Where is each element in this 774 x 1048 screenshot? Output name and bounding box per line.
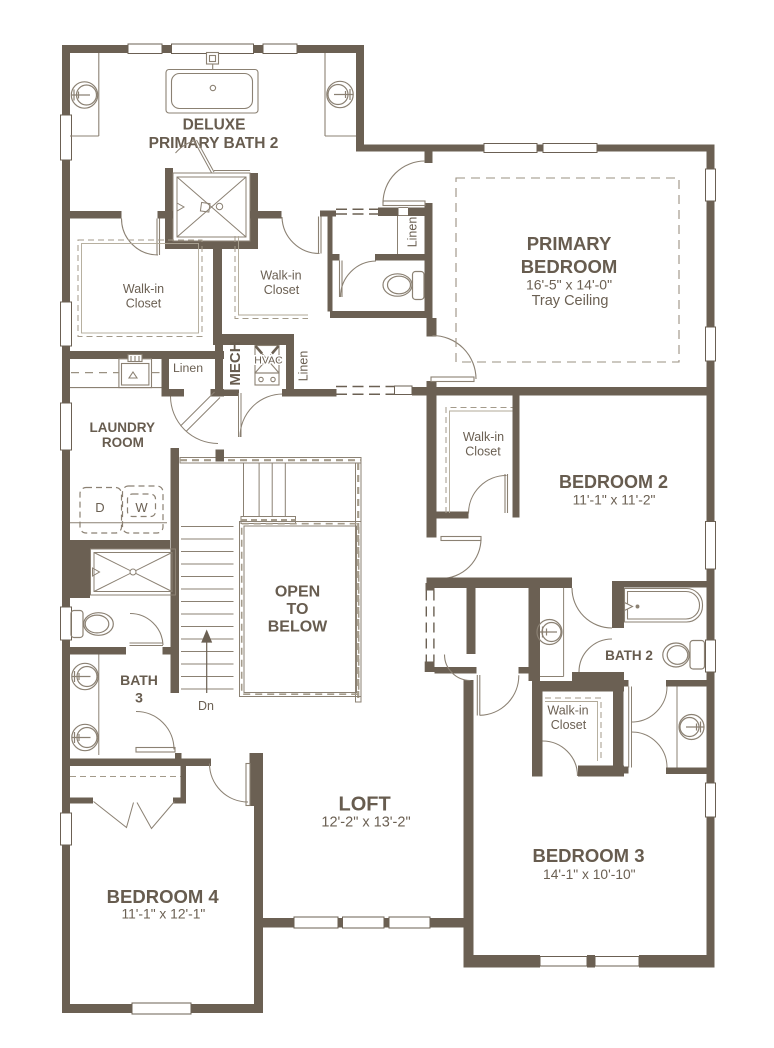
svg-text:14'-1" x 10'-10": 14'-1" x 10'-10" <box>543 867 636 882</box>
svg-text:Walk-in: Walk-in <box>260 269 301 283</box>
svg-text:BELOW: BELOW <box>268 619 328 636</box>
svg-text:Walk-in: Walk-in <box>547 704 588 718</box>
svg-text:BATH: BATH <box>120 672 158 688</box>
svg-text:Closet: Closet <box>465 445 501 459</box>
svg-text:ROOM: ROOM <box>102 435 144 450</box>
svg-text:Walk-in: Walk-in <box>123 282 164 296</box>
svg-text:Walk-in: Walk-in <box>463 430 504 444</box>
svg-text:Linen: Linen <box>297 351 311 382</box>
svg-text:DELUXE: DELUXE <box>183 117 246 134</box>
svg-text:PRIMARY BATH 2: PRIMARY BATH 2 <box>149 135 279 152</box>
svg-text:BEDROOM 4: BEDROOM 4 <box>107 886 220 907</box>
svg-text:11'-1" x 11'-2": 11'-1" x 11'-2" <box>573 493 656 508</box>
svg-text:Closet: Closet <box>126 297 162 311</box>
svg-text:BATH 2: BATH 2 <box>605 648 653 663</box>
svg-text:LOFT: LOFT <box>338 794 390 816</box>
svg-text:Linen: Linen <box>173 361 203 375</box>
svg-text:W: W <box>135 500 148 515</box>
svg-text:BEDROOM: BEDROOM <box>521 256 618 277</box>
svg-text:HVAC: HVAC <box>254 355 283 367</box>
svg-text:Closet: Closet <box>551 718 587 732</box>
svg-text:Linen: Linen <box>406 217 420 248</box>
svg-text:PRIMARY: PRIMARY <box>527 233 612 254</box>
svg-text:BEDROOM 2: BEDROOM 2 <box>559 472 668 492</box>
svg-text:16'-5" x 14'-0": 16'-5" x 14'-0" <box>526 277 612 293</box>
svg-text:LAUNDRY: LAUNDRY <box>90 420 156 435</box>
svg-text:BEDROOM 3: BEDROOM 3 <box>532 845 644 866</box>
svg-text:12'-2" x 13'-2": 12'-2" x 13'-2" <box>321 814 410 830</box>
svg-text:Dn: Dn <box>198 699 214 713</box>
svg-text:D: D <box>95 500 104 515</box>
svg-text:3: 3 <box>135 690 143 706</box>
svg-text:TO: TO <box>287 601 309 618</box>
svg-text:Closet: Closet <box>264 283 300 297</box>
svg-text:Tray Ceiling: Tray Ceiling <box>532 293 609 309</box>
svg-text:OPEN: OPEN <box>275 584 320 601</box>
svg-text:MECH: MECH <box>227 341 244 385</box>
svg-text:11'-1" x 12'-1": 11'-1" x 12'-1" <box>121 906 205 921</box>
